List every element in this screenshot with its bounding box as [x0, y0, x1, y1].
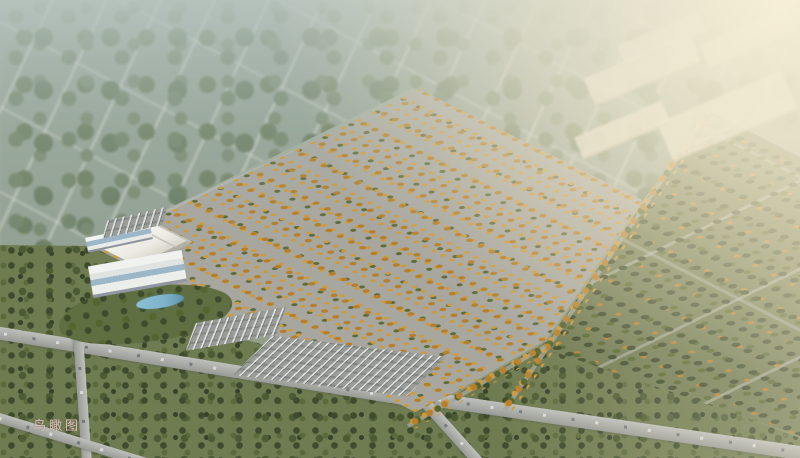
- industrial-park-aerial-rendering: 鸟瞰图: [0, 0, 800, 458]
- watermark-text: 鸟瞰图: [33, 415, 81, 434]
